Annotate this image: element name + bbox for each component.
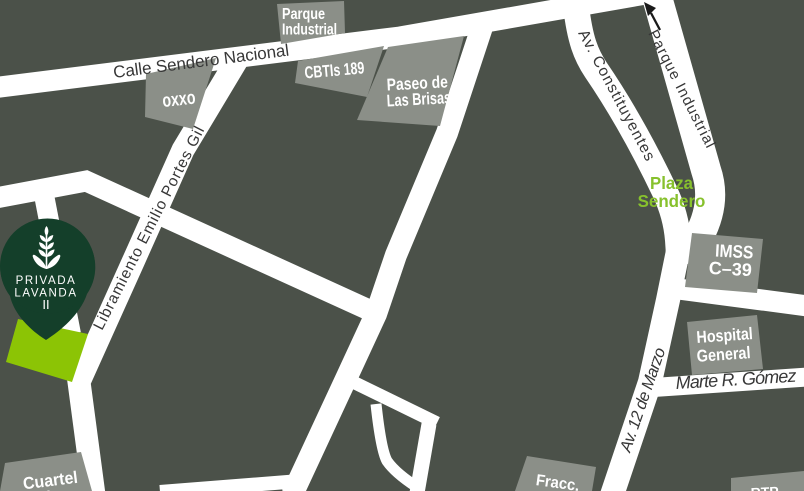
svg-text:General: General — [696, 344, 751, 366]
svg-text:Sendero: Sendero — [638, 191, 706, 211]
svg-text:Las Brisas: Las Brisas — [386, 88, 451, 111]
svg-text:Industrial: Industrial — [282, 20, 337, 38]
svg-text:oxxo: oxxo — [161, 87, 196, 112]
svg-text:II: II — [42, 297, 49, 312]
svg-text:PRIVADA: PRIVADA — [16, 275, 77, 287]
svg-text:RTP: RTP — [750, 483, 779, 491]
svg-text:C–39: C–39 — [708, 258, 752, 280]
